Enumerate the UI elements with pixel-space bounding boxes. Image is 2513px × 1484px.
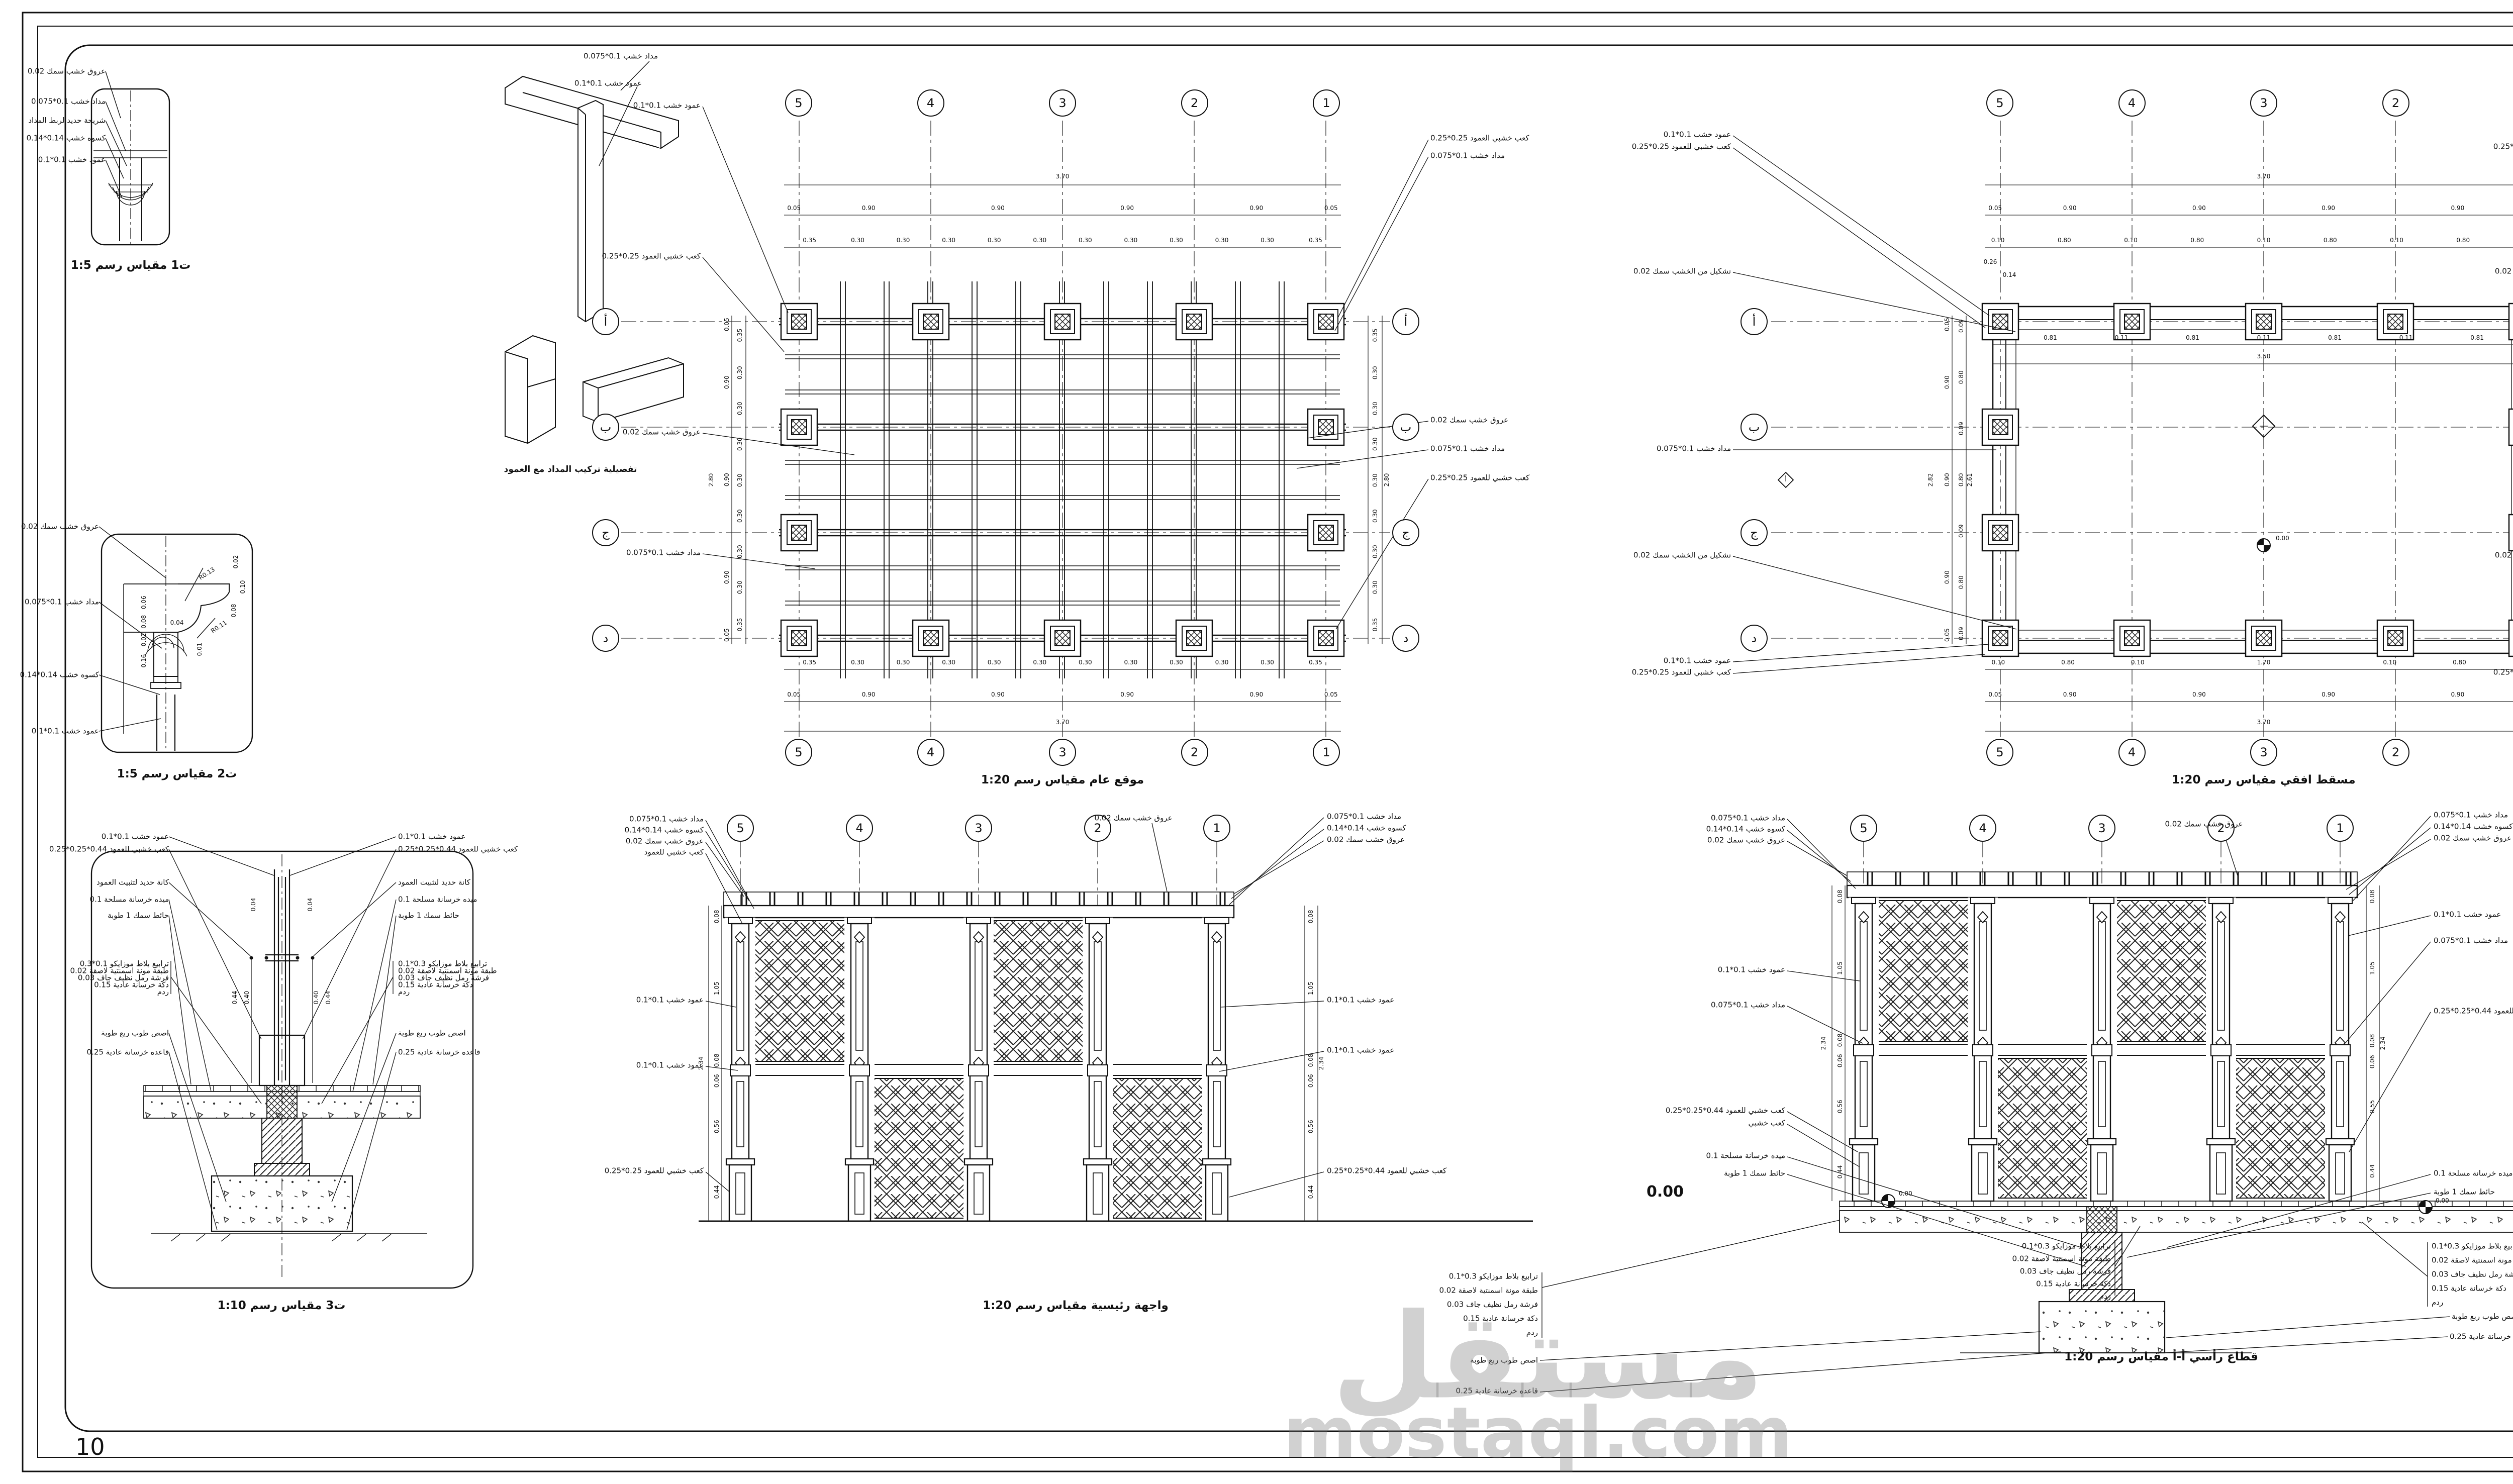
annotation-label: مداد خشب 0.1*0.075	[584, 52, 658, 60]
annotation-label: حائط سمك 1 طوبة	[1724, 1169, 1785, 1177]
annotation-label: ردم	[2099, 1292, 2111, 1301]
dim-total: 2.61	[1967, 473, 1974, 487]
grid-bubble: 4	[1969, 815, 1996, 842]
annotation-label: كعب خشبي للعمود 0.44*0.25*0.25	[1327, 1166, 1446, 1175]
dim-chain: 0.050.900.900.900.05	[1943, 316, 1951, 644]
grid-bubble: 3	[2250, 89, 2277, 117]
annotation-label: قاعده خرسانة عادية 0.25	[87, 1048, 169, 1056]
grid-bubbles-top: 54321	[1850, 815, 2354, 842]
grid-bubble: 5	[1986, 89, 2013, 117]
annotation-label: كعب خشبي للعمود 0.44*0.25*0.25	[2434, 1007, 2513, 1015]
annotation-label: عمود خشب 0.1*0.1	[38, 155, 106, 164]
annotation-label: عمود خشب 0.1*0.1	[574, 79, 642, 87]
dim-chain: 0.350.300.300.300.300.300.300.300.300.30…	[784, 235, 1341, 245]
annotation-label: اصص طوب ربع طوبة	[101, 1029, 169, 1037]
annotation-label: عروق خشب سمك 0.02	[2434, 834, 2511, 842]
annotation-label: كعب خشبي للعمود 0.25*0.25	[2493, 668, 2513, 676]
annotation-label: ردم	[1526, 1328, 1538, 1337]
dim-label: 0.04	[307, 898, 314, 912]
annotation-label: عمود خشب 0.1*0.1	[398, 832, 465, 841]
grid-bubble: 1	[1203, 815, 1230, 842]
annotation-label: دكة خرسانة عادية 0.15	[1463, 1314, 1538, 1323]
annotation-label: حائط سمك 1 طوبة	[108, 911, 169, 920]
grid-bubbles-bottom: 54321	[785, 739, 1340, 766]
dim-chain: 0.081.050.080.060.550.44	[2368, 885, 2376, 1201]
dim-total: 2.34	[1820, 1037, 1827, 1050]
row-bubbles: أبجد	[592, 308, 619, 652]
dim-total: 2.34	[2380, 1037, 2387, 1050]
annotation-label: كعب خشبي للعمود 0.44*0.25*0.25	[49, 845, 169, 853]
annotation-label: عمود خشب 0.1*0.1	[2434, 910, 2501, 919]
detail-caption: ت1 مقياس رسم 1:5	[71, 259, 191, 272]
annotation-label: عروق خشب سمك 0.02	[28, 67, 106, 75]
grid-bubble: 1	[1313, 739, 1340, 766]
annotation-label: عروق خشب سمك 0.02	[21, 522, 99, 531]
annotation-label: كعب خشبي للعمود 0.25*0.25	[1430, 473, 1529, 482]
annotation-label: عمود خشب 0.1*0.1	[1664, 656, 1731, 665]
dim-chain: 0.100.800.100.800.100.800.100.800.10	[1985, 235, 2513, 245]
annotation-label: قاعده خرسانة عادية 0.25	[1456, 1387, 1538, 1395]
dim-label: 0.02	[233, 555, 240, 569]
annotation-label: عروق خشب سمك 0.02	[626, 837, 704, 845]
dim-label: 0.08	[231, 604, 238, 618]
grid-bubble: 2	[2382, 739, 2409, 766]
dim-label: 0.40	[244, 991, 251, 1005]
dim-chain: 0.350.300.300.300.300.300.300.300.35	[1371, 316, 1379, 644]
dim-chain: 0.050.900.900.900.900.05	[784, 203, 1341, 213]
dim-label: 0.01	[197, 643, 204, 656]
annotation-label: كانة حديد لتثبيت العمود	[96, 878, 169, 886]
annotation-label: ردم	[398, 987, 410, 996]
annotation-label: عروق خشب سمك 0.02	[2165, 820, 2243, 828]
grid-bubble: ب	[1392, 414, 1419, 441]
grid-bubble: 2	[1181, 739, 1208, 766]
grid-bubble: 4	[917, 89, 944, 117]
level-label: 0.00	[2436, 1198, 2449, 1205]
annotation-label: عمود خشب 0.1*0.1	[636, 1061, 704, 1069]
grid-bubble: 3	[1049, 89, 1076, 117]
annotation-label: حائط سمك 1 طوبة	[2434, 1188, 2495, 1196]
dim-chain: 0.350.300.300.300.300.300.300.300.35	[736, 316, 744, 644]
view-caption: موقع عام مقياس رسم 1:20	[981, 773, 1144, 786]
grid-bubble: د	[1392, 625, 1419, 652]
dim-chain: 0.050.900.900.900.900.05	[1985, 203, 2513, 213]
annotation-label: فرشة رمل نظيف جاف 0.03	[2020, 1267, 2111, 1275]
row-bubbles: أبجد	[1392, 308, 1419, 652]
grid-bubble: 3	[965, 815, 992, 842]
dim-chain: 0.081.050.080.060.560.44	[1307, 906, 1315, 1221]
grid-bubble: 1	[1313, 89, 1340, 117]
annotation-label: طبقة مونة اسمنتية لاصقة 0.02	[2432, 1256, 2513, 1264]
annotation-label: دكة خرسانة عادية 0.15	[2432, 1284, 2506, 1293]
grid-bubble: 4	[2118, 739, 2146, 766]
dim-total: 3.70	[1056, 173, 1070, 180]
annotation-label: قاعده خرسانة عادية 0.25	[2450, 1332, 2513, 1341]
dim-total: 2.80	[708, 473, 715, 487]
dim-chain: 0.050.900.900.900.900.05	[784, 689, 1341, 700]
annotation-label: كسوه خشب 0.14*0.14	[1706, 825, 1785, 833]
annotation-label: ترابيع بلاط موزايكو 0.3*0.1	[1449, 1272, 1538, 1280]
annotation-label: مداد خشب 0.1*0.075	[1657, 444, 1731, 453]
annotation-label: كسوه خشب 0.14*0.14	[2434, 822, 2512, 831]
annotation-label: مداد خشب 0.1*0.075	[1327, 812, 1401, 821]
annotation-label: كانة حديد لتثبيت العمود	[398, 878, 470, 886]
dim-chain: 0.050.900.900.900.900.05	[1985, 689, 2513, 700]
grid-bubble: 5	[785, 739, 812, 766]
row-bubbles: أبجد	[1741, 308, 1768, 652]
annotation-label: تشكيل من الخشب سمك 0.02	[2495, 267, 2513, 275]
dim-chain: 0.060.080.020.16	[140, 593, 148, 734]
grid-bubble: ب	[1741, 414, 1768, 441]
annotation-label: ميده خرسانة مسلحة 0.1	[1706, 1151, 1785, 1160]
annotation-label: عمود خشب 0.1*0.1	[1327, 996, 1394, 1004]
dim-chain: 0.350.300.300.300.300.300.300.300.300.30…	[784, 657, 1341, 667]
grid-bubble: د	[592, 625, 619, 652]
annotation-label: كعب خشبي للعمود 0.25*0.25	[605, 1166, 704, 1175]
annotation-label: عمود خشب 0.1*0.1	[636, 996, 704, 1004]
grid-bubble: 3	[2088, 815, 2115, 842]
page-number: 10	[75, 1433, 105, 1460]
dim-label: 0.44	[232, 991, 239, 1005]
annotation-label: مداد خشب 0.1*0.075	[25, 598, 99, 606]
annotation-label: عمود خشب 0.1*0.1	[102, 832, 169, 841]
dim-chain: 0.081.050.080.060.560.44	[1836, 885, 1844, 1201]
annotation-label: عمود خشب 0.1*0.1	[1327, 1046, 1394, 1054]
grid-bubble: ب	[592, 414, 619, 441]
dim-total: 3.70	[2257, 173, 2271, 180]
annotation-label: عروق خشب سمك 0.02	[623, 428, 701, 436]
annotation-label: ميده خرسانة مسلحة 0.1	[90, 895, 169, 904]
annotation-label: عمود خشب 0.1*0.1	[633, 101, 701, 110]
grid-bubble: 1	[2327, 815, 2354, 842]
dim-label: 0.40	[313, 991, 320, 1005]
annotation-label: قاعده خرسانة عادية 0.25	[398, 1048, 480, 1056]
annotation-label: دكة خرسانة عادية 0.15	[2036, 1279, 2111, 1288]
dim-label: 0.44	[325, 991, 332, 1005]
detail-caption: ت2 مقياس رسم 1:5	[117, 767, 237, 780]
annotation-label: طبقة مونة اسمنتية لاصقة 0.02	[2012, 1254, 2111, 1263]
dim-label: 0.04	[170, 620, 184, 627]
annotation-label: مداد خشب 0.1*0.075	[31, 97, 106, 106]
annotation-label: مداد خشب 0.1*0.075	[626, 548, 701, 557]
dim-label: 0.10	[240, 580, 247, 594]
grid-bubble: ج	[1741, 519, 1768, 546]
annotation-label: كعب خشبي العمود 0.25*0.25	[602, 252, 701, 260]
dim-chain: 0.100.800.101.700.100.800.10	[1985, 657, 2513, 667]
detail-caption: ت3 مقياس رسم 1:10	[218, 1299, 346, 1312]
annotation-label: كعب خشبي للعمود 0.44*0.25*0.25	[398, 845, 518, 853]
annotation-label: كسوه خشب 0.14*0.14	[625, 826, 704, 834]
annotation-label: مداد خشب 0.1*0.075	[1711, 1001, 1785, 1009]
grid-bubble: 4	[2118, 89, 2146, 117]
annotation-label: عمود خشب 0.1*0.1	[1664, 130, 1731, 139]
dim-total: 2.34	[1318, 1057, 1325, 1070]
annotation-label: ميده خرسانة مسلحة 0.1	[2434, 1169, 2512, 1177]
dim-label: 0.14	[2003, 272, 2016, 279]
view-caption: واجهة رئيسية مقياس رسم 1:20	[983, 1299, 1169, 1312]
dim-total: 3.50	[2257, 353, 2271, 360]
grid-bubble: 3	[1049, 739, 1076, 766]
level-label: 0.00	[1899, 1191, 1912, 1198]
grid-bubble: 4	[917, 739, 944, 766]
annotation-label: فرشة رمل نظيف جاف 0.03	[1447, 1300, 1538, 1309]
view-caption: قطاع رأسي أ-أ مقياس رسم 1:20	[2064, 1350, 2258, 1363]
annotation-label: اصص طوب ربع طوبة	[398, 1029, 466, 1037]
annotation-label: عروق خشب سمك 0.02	[1430, 416, 1508, 424]
grid-bubble: ج	[592, 519, 619, 546]
grid-bubbles-bottom: 54321	[1986, 739, 2513, 766]
grid-bubbles-top: 54321	[1986, 89, 2513, 117]
grid-bubbles-top: 54321	[785, 89, 1340, 117]
annotation-label: تشكيل من الخشب سمك 0.02	[1633, 267, 1731, 275]
grid-bubble: د	[1741, 625, 1768, 652]
annotation-label: مداد خشب 0.1*0.075	[1430, 444, 1505, 453]
annotation-label: طبقة مونة اسمنتية لاصقة 0.02	[1439, 1286, 1538, 1295]
grid-bubble: أ	[1741, 308, 1768, 335]
level-label: 0.00	[2276, 535, 2289, 542]
grid-bubble: 5	[785, 89, 812, 117]
annotation-label: عروق خشب سمك 0.02	[1094, 814, 1172, 822]
grid-bubble: أ	[1392, 308, 1419, 335]
grid-bubble: 2	[1181, 89, 1208, 117]
annotation-label: كعب خشبي للعمود 0.44*0.25*0.25	[1666, 1106, 1785, 1115]
annotation-label: اصص طوب ربع طوبة	[2452, 1312, 2513, 1321]
dim-total: 2.34	[698, 1057, 705, 1070]
annotation-label: تشكيل من الخشب سمك 0.02	[2495, 551, 2513, 559]
annotation-label: مداد خشب 0.1*0.075	[1430, 151, 1505, 160]
annotation-label: كعب خشبي العمود 0.25*0.25	[1430, 134, 1529, 142]
dim-label: 0.04	[250, 898, 257, 912]
grid-bubble: 5	[1850, 815, 1877, 842]
annotation-label: عمود خشب 0.1*0.1	[32, 727, 99, 735]
annotation-label: كسوه خشب 0.14*0.14	[1327, 824, 1406, 832]
dim-chain: 0.081.050.080.060.560.44	[713, 906, 721, 1221]
annotation-label: عمود خشب 0.1*0.1	[1718, 965, 1785, 974]
dim-chain: 0.090.800.090.800.090.800.09	[1957, 316, 1965, 644]
annotation-label: كسوه خشب 0.14*0.14	[27, 134, 106, 142]
grid-bubble: 5	[1986, 739, 2013, 766]
annotation-label: كعب خشبي	[1748, 1119, 1785, 1127]
dim-total: 3.70	[2257, 719, 2271, 726]
dim-chain: 0.810.110.810.110.810.110.81	[1993, 333, 2513, 343]
annotation-label: كعب خشبي للعمود	[644, 848, 704, 856]
annotation-label: مداد خشب 0.1*0.075	[2434, 811, 2508, 819]
dim-total: 2.82	[1927, 473, 1935, 487]
annotation-label: كعب خشبي للعمود 0.25*0.25	[1632, 668, 1731, 676]
grid-bubble: 5	[727, 815, 754, 842]
level-label: 0.00	[1647, 1183, 1684, 1201]
grid-bubble: 4	[846, 815, 873, 842]
annotation-label: فرشة رمل نظيف جاف 0.03	[2432, 1270, 2513, 1278]
view-caption: مسقط افقي مقياس رسم 1:20	[2172, 773, 2355, 786]
dim-total: 3.70	[1056, 719, 1070, 726]
annotation-label: كسوه خشب 0.14*0.14	[20, 670, 99, 679]
annotation-label: شريحة حديد لربط المداد	[28, 116, 106, 125]
annotation-label: مداد خشب 0.1*0.075	[1711, 814, 1785, 822]
annotation-label: كعب خشبي للعمود 0.25*0.25	[2493, 142, 2513, 151]
grid-bubble: 3	[2250, 739, 2277, 766]
annotation-label: ميده خرسانة مسلحة 0.1	[398, 895, 477, 904]
section-marker: أ	[1785, 476, 1786, 483]
annotation-label: مداد خشب 0.1*0.075	[2434, 936, 2508, 945]
drawing-sheet: عروق خشب سمك 0.02 مداد خشب 0.1*0.075 شري…	[0, 0, 2513, 1484]
grid-bubble: أ	[592, 308, 619, 335]
annotation-label: عروق خشب سمك 0.02	[1707, 836, 1785, 844]
annotation-label: ردم	[2432, 1298, 2443, 1307]
annotation-label: ترابيع بلاط موزايكو 0.3*0.1	[2022, 1242, 2111, 1250]
annotation-label: مداد خشب 0.1*0.075	[629, 815, 704, 823]
annotation-label: اصص طوب ربع طوبة	[1470, 1356, 1538, 1364]
annotation-label: كعب خشبي للعمود 0.25*0.25	[1632, 142, 1731, 151]
annotation-label: عروق خشب سمك 0.02	[1327, 835, 1405, 844]
annotation-label: حائط سمك 1 طوبة	[398, 911, 459, 920]
annotation-label: ترابيع بلاط موزايكو 0.3*0.1	[2432, 1242, 2513, 1250]
grid-bubble: 2	[2382, 89, 2409, 117]
annotation-label: ردم	[157, 987, 169, 996]
dim-total: 2.80	[1384, 473, 1391, 487]
annotation-label: تشكيل من الخشب سمك 0.02	[1633, 551, 1731, 559]
dim-label: 0.26	[1984, 259, 1997, 266]
dim-chain: 0.050.900.900.900.05	[723, 316, 731, 644]
grid-bubble: ج	[1392, 519, 1419, 546]
